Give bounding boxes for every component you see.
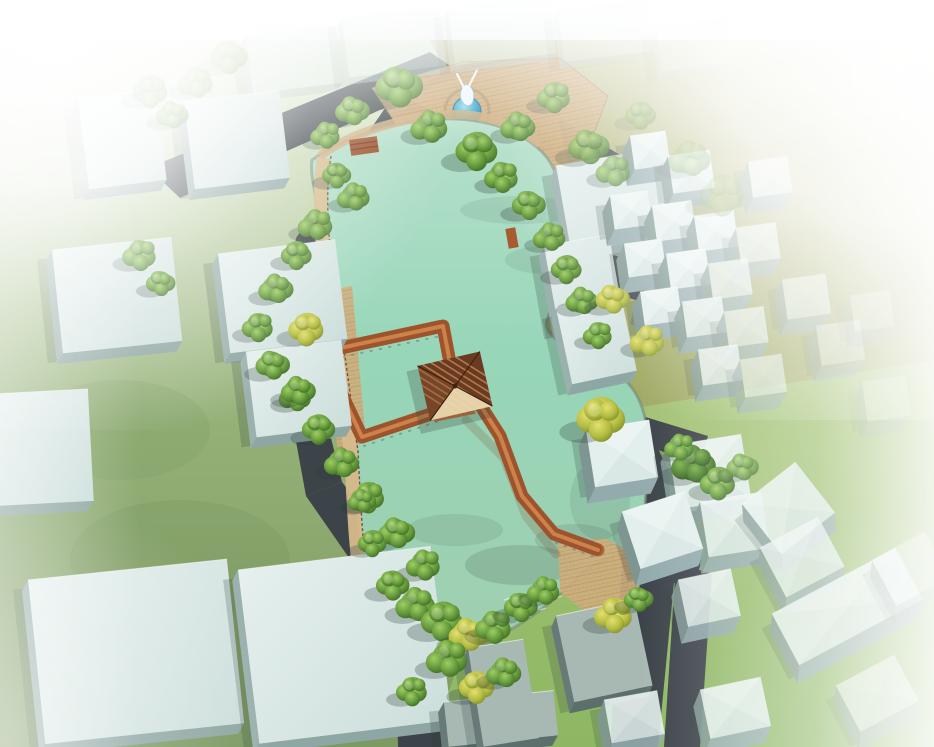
tree-canopy-blob [361, 492, 372, 503]
rendering-canvas: Aerial 3D architectural rendering: pond … [0, 0, 934, 747]
tree-highlight [459, 623, 469, 633]
tree-canopy-blob [486, 626, 504, 644]
tree-canopy-blob [391, 573, 405, 587]
tree-highlight [384, 575, 393, 584]
tree-canopy-blob [405, 691, 420, 706]
tree-canopy-blob [310, 428, 327, 445]
tree-canopy-blob [417, 564, 434, 581]
tree-canopy-blob [443, 605, 460, 622]
water-reflection [407, 514, 503, 546]
tree-highlight [407, 593, 417, 603]
tree-highlight [438, 647, 449, 658]
tree-canopy-blob [468, 686, 486, 704]
tree-canopy-blob [440, 657, 460, 677]
tree-canopy-blob [538, 589, 553, 604]
tree-highlight [496, 663, 505, 672]
tree-highlight [355, 493, 362, 500]
tree-canopy-blob [605, 615, 624, 634]
tree-highlight [334, 453, 343, 462]
tree-canopy-blob [342, 450, 356, 464]
haze-bottom-left [0, 480, 300, 747]
tree-highlight [416, 555, 425, 564]
tree-highlight [536, 582, 544, 590]
tree-highlight [605, 603, 615, 613]
tree-highlight [365, 534, 373, 542]
tree-canopy-blob [425, 551, 439, 565]
tree-highlight [467, 676, 477, 686]
tree-highlight [404, 682, 412, 690]
tree-canopy-blob [449, 643, 465, 659]
tree-canopy-blob [589, 418, 613, 442]
tree-canopy-blob [413, 679, 426, 692]
aerial-scene: Aerial 3D architectural rendering: pond … [0, 0, 934, 747]
tree-canopy-blob [365, 543, 379, 557]
tree-highlight [387, 522, 397, 532]
tree-canopy-blob [416, 590, 431, 605]
tree-canopy-blob [545, 579, 558, 592]
tree-canopy-blob [504, 661, 517, 675]
tree-highlight [631, 590, 639, 598]
haze-bottom-right [680, 500, 934, 747]
tree-canopy-blob [372, 532, 384, 544]
tree-canopy-blob [395, 521, 409, 535]
tree-highlight [432, 608, 443, 619]
